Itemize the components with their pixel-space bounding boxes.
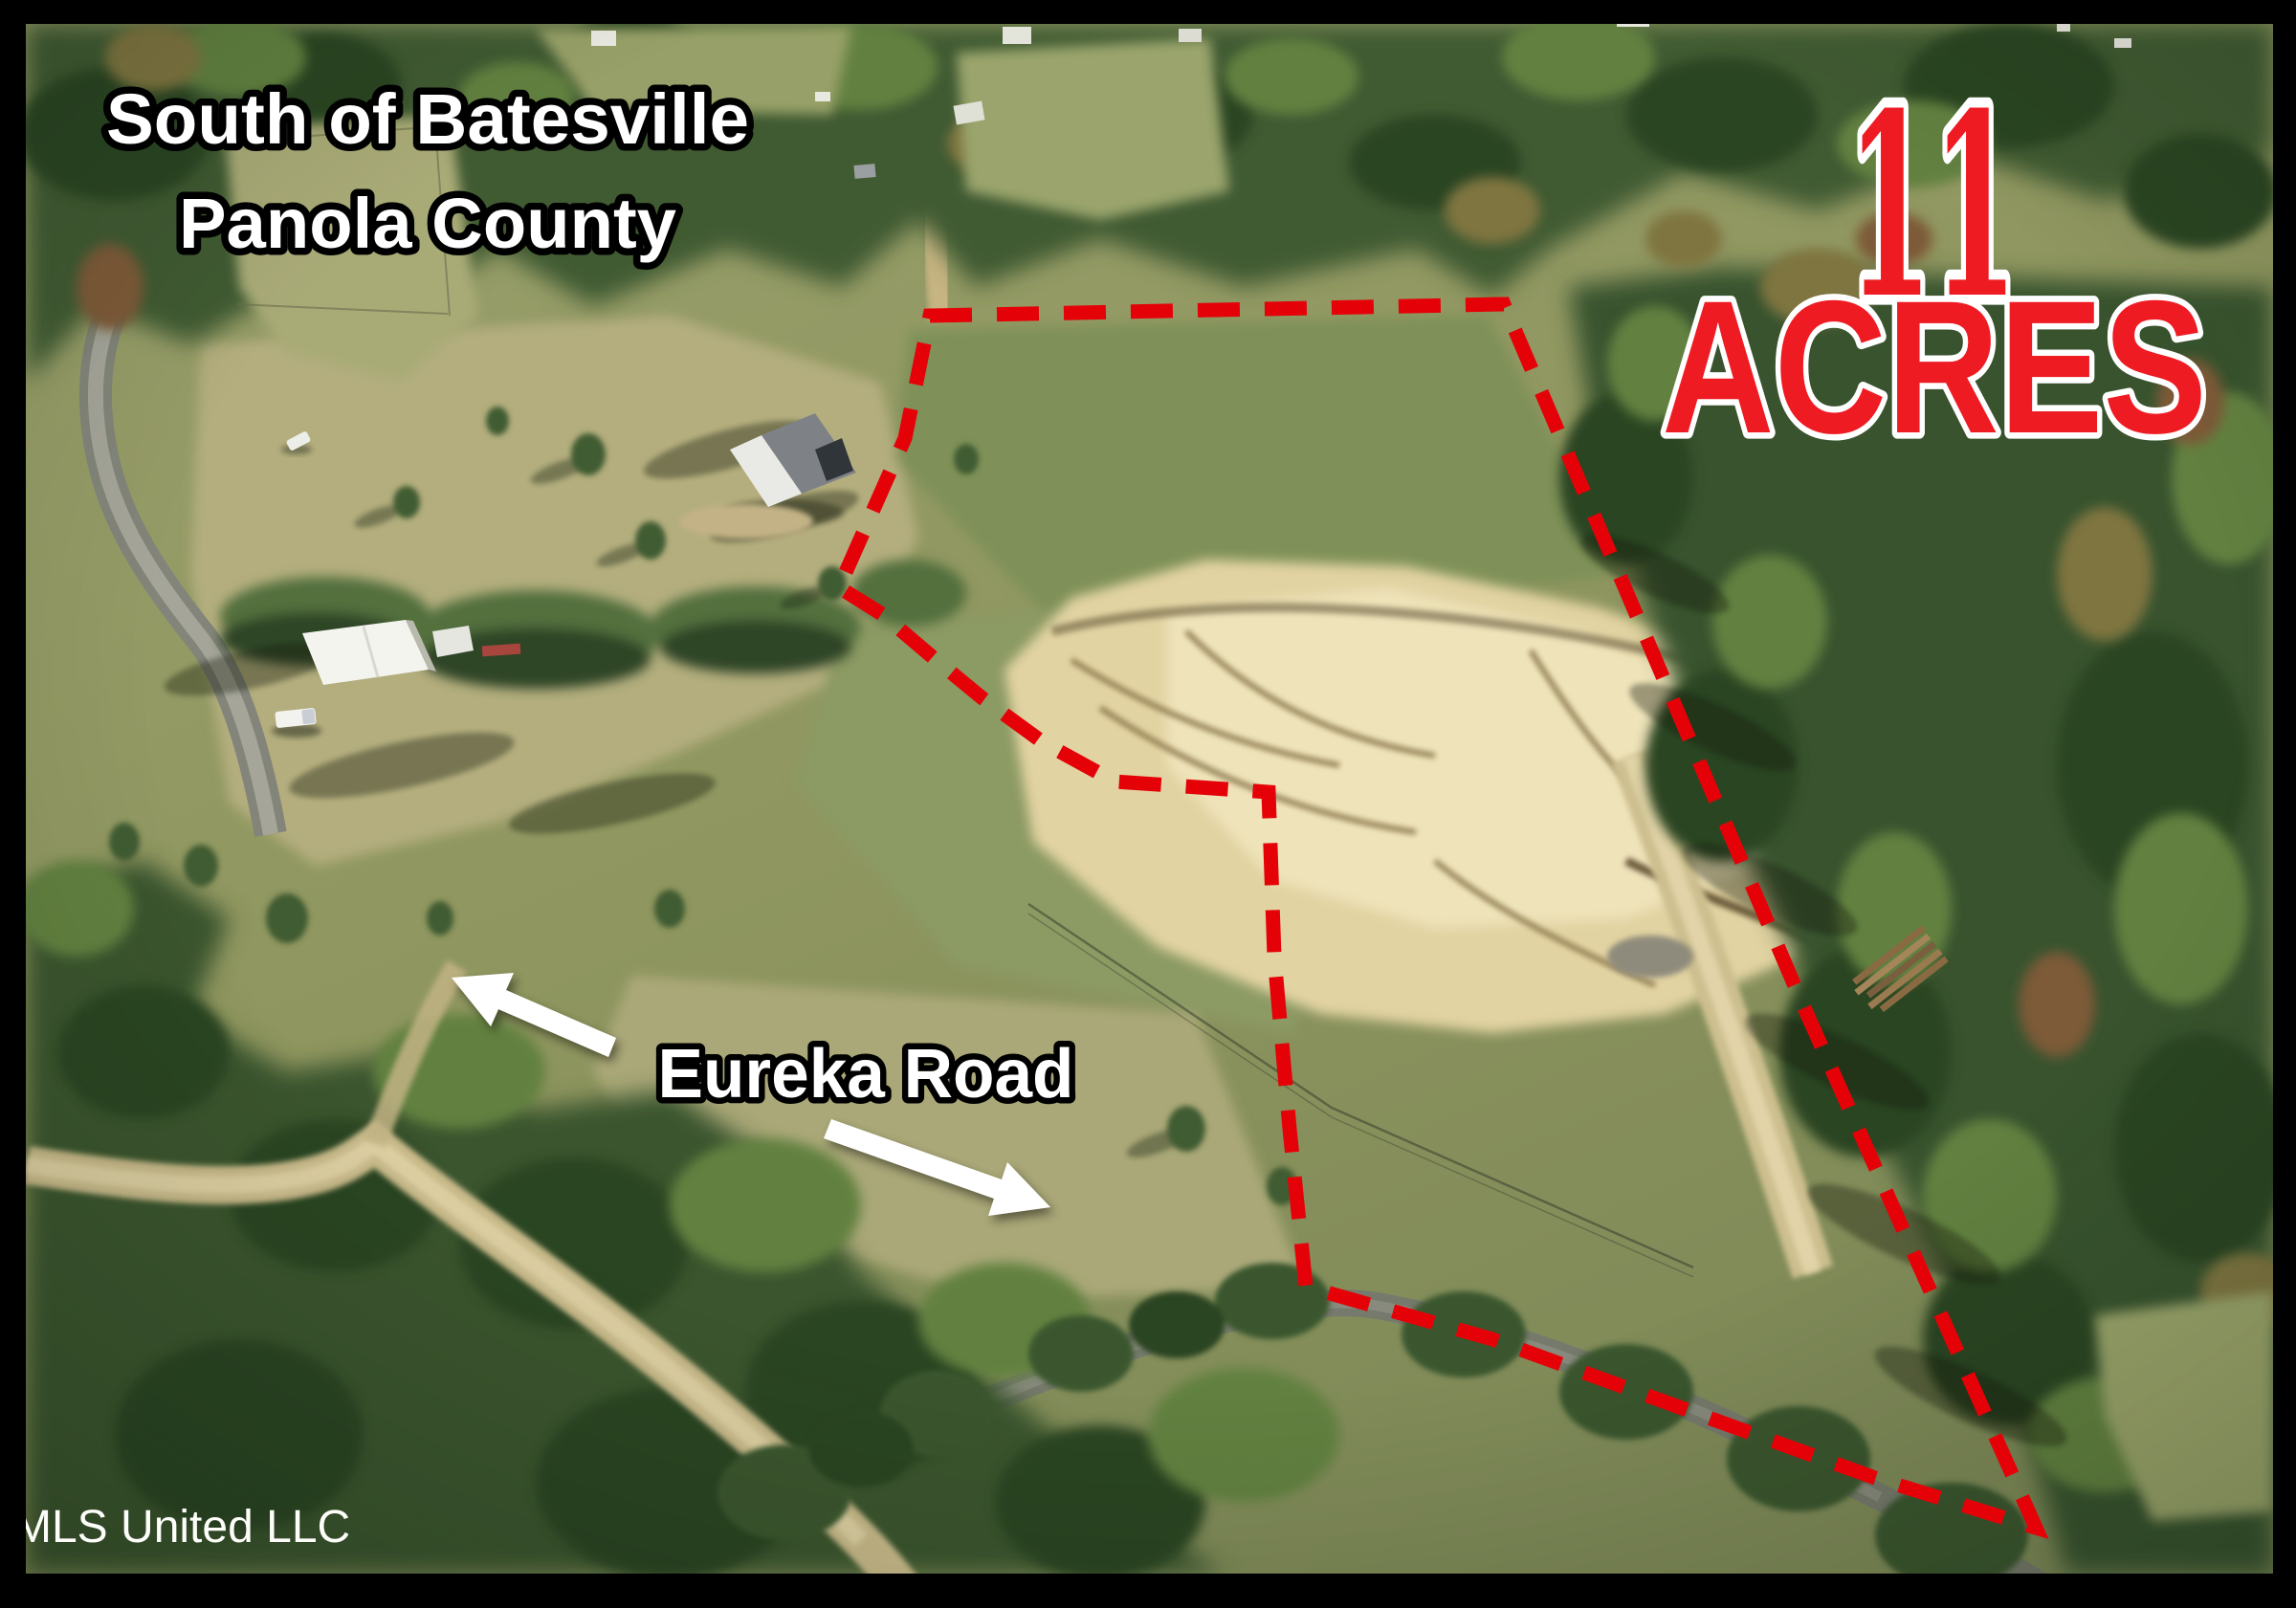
- acreage-unit: ACRES: [1662, 261, 2207, 474]
- aerial-listing-photo: South of Batesville Panola County 11 ACR…: [0, 0, 2296, 1608]
- location-line1: South of Batesville: [106, 79, 749, 159]
- road-name-label: Eureka Road: [658, 1036, 1074, 1112]
- brokerage-watermark: MLS United LLC: [13, 1502, 350, 1553]
- location-line2: Panola County: [179, 184, 676, 263]
- photo-canvas: South of Batesville Panola County 11 ACR…: [0, 0, 2296, 1608]
